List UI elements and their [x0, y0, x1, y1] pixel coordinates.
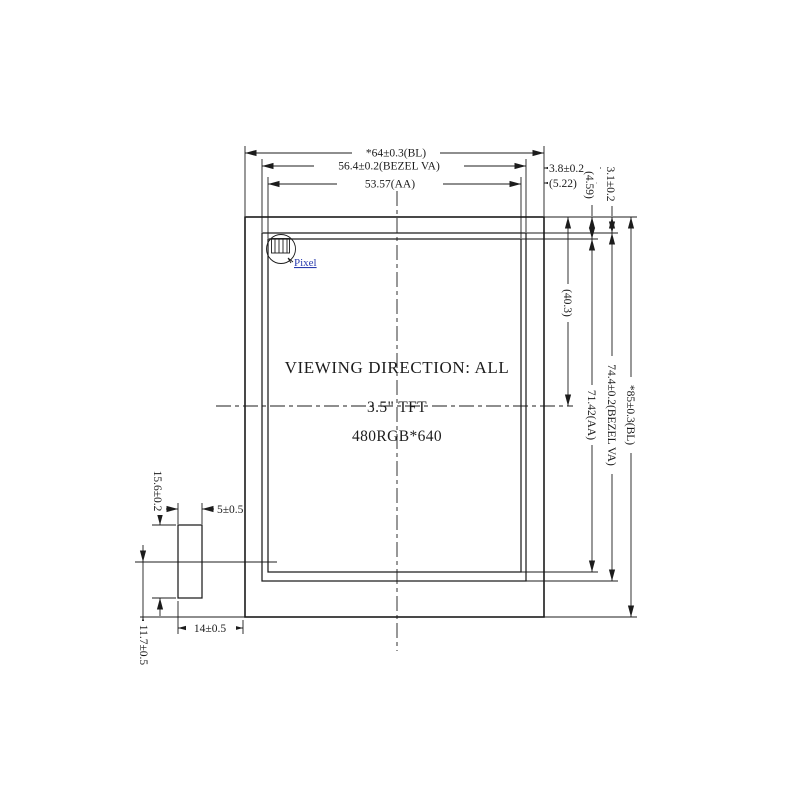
- pixel-detail-callout: Pixel: [267, 235, 317, 270]
- dim-bezel-right-margin: 3.8±0.2: [549, 163, 584, 175]
- side-view-fpc: [135, 525, 277, 598]
- dim-fpc-bottom-offset: 11.7±0.5: [137, 625, 149, 666]
- viewing-direction-label: VIEWING DIRECTION: ALL: [285, 358, 510, 377]
- lcd-mechanical-drawing-page: Pixel VIEWING DIRECTION: ALL 3.5" TFT 48…: [0, 0, 800, 800]
- right-dimensions: (40.3) (4.59) 71.42(AA) 3.1±0.2 74.4±0.2…: [521, 162, 638, 617]
- pixel-label: Pixel: [294, 257, 317, 269]
- dim-aa-width: 53.57(AA): [365, 179, 415, 191]
- dim-fpc-thickness: 5±0.5: [217, 504, 244, 516]
- dim-bezel-top-margin: 3.1±0.2: [604, 166, 616, 201]
- fpc-hatched-section: [178, 525, 202, 598]
- dim-fpc-height: 15.6±0.2: [151, 471, 163, 512]
- centerlines: [216, 191, 573, 651]
- dim-bl-width: *64±0.3(BL): [366, 148, 426, 160]
- center-labels: VIEWING DIRECTION: ALL 3.5" TFT 480RGB*6…: [285, 358, 510, 445]
- front-view-outline: [140, 217, 637, 617]
- engineering-drawing-canvas: Pixel VIEWING DIRECTION: ALL 3.5" TFT 48…: [0, 0, 800, 800]
- dim-bezel-va-width: 56.4±0.2(BEZEL VA): [338, 161, 440, 173]
- left-bottom-dimensions: 15.6±0.2 5±0.5 14±0.5 11.7±0.5: [137, 467, 244, 669]
- panel-size-label: 3.5" TFT: [367, 399, 427, 416]
- dim-aa-top-margin: (4.59): [583, 171, 595, 199]
- dim-bezel-va-height: 74.4±0.2(BEZEL VA): [605, 364, 617, 466]
- resolution-label: 480RGB*640: [352, 428, 442, 445]
- top-dimensions: *64±0.3(BL) 56.4±0.2(BEZEL VA) 53.57(AA)…: [245, 146, 601, 238]
- dim-bl-height: *85±0.3(BL): [624, 385, 636, 445]
- backlight-outline: [245, 217, 544, 617]
- dim-center-from-top: (40.3): [561, 289, 573, 317]
- dim-aa-height: 71.42(AA): [585, 390, 597, 440]
- dim-fpc-width: 14±0.5: [194, 623, 226, 635]
- dim-aa-right-margin: (5.22): [549, 178, 577, 190]
